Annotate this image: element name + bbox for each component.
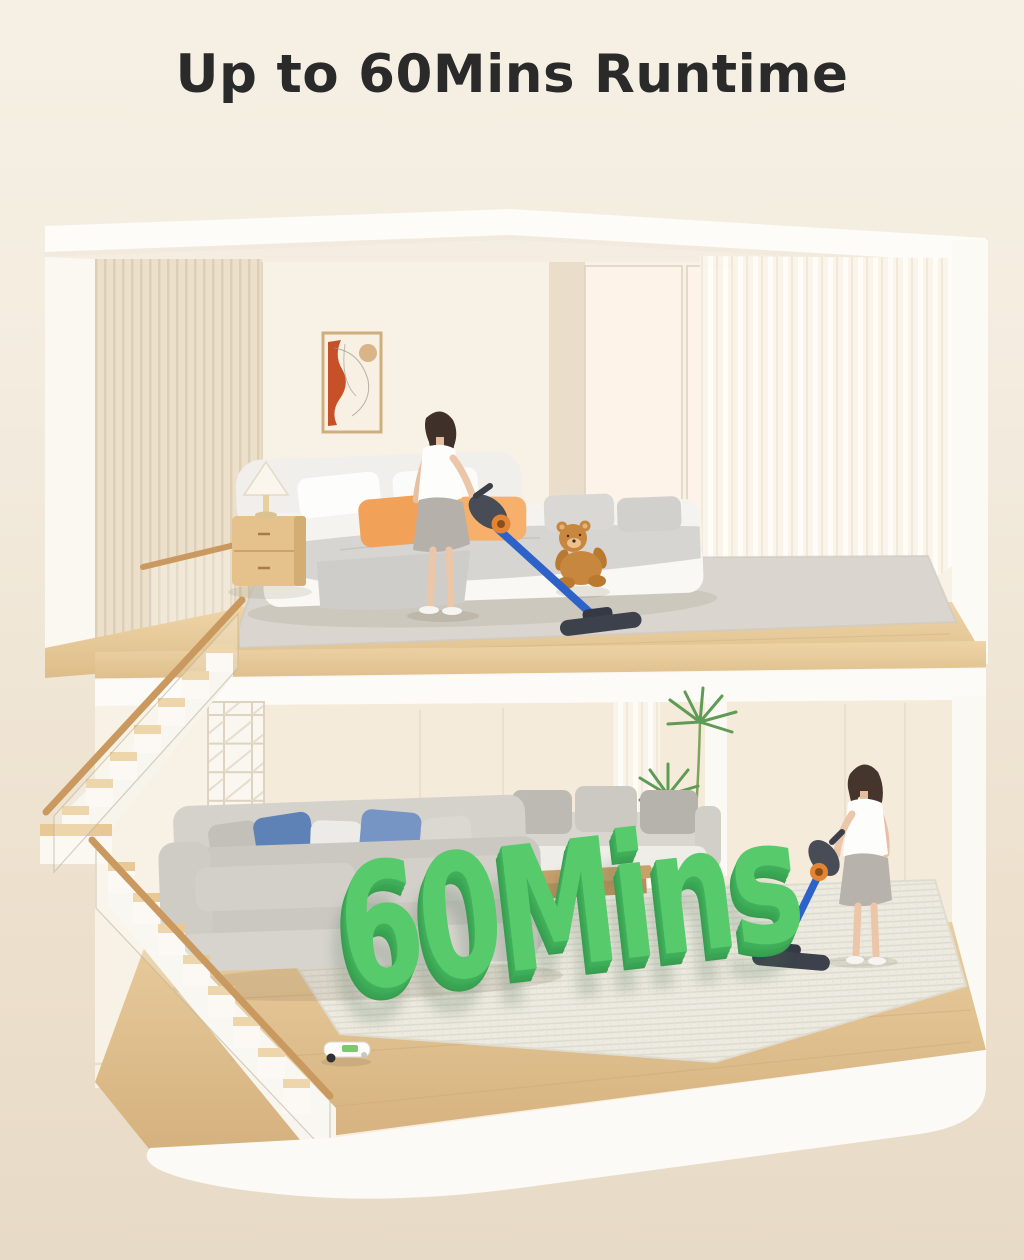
floor-toy — [321, 1042, 371, 1067]
runtime-3d-label: 60Mins — [330, 794, 807, 1017]
wall-art-frame — [323, 333, 381, 432]
product-banner: Up to 60Mins Runtime — [0, 0, 1024, 1260]
house-cutaway-illustration — [0, 0, 1024, 1260]
sheer-curtain-bedroom — [700, 256, 952, 594]
